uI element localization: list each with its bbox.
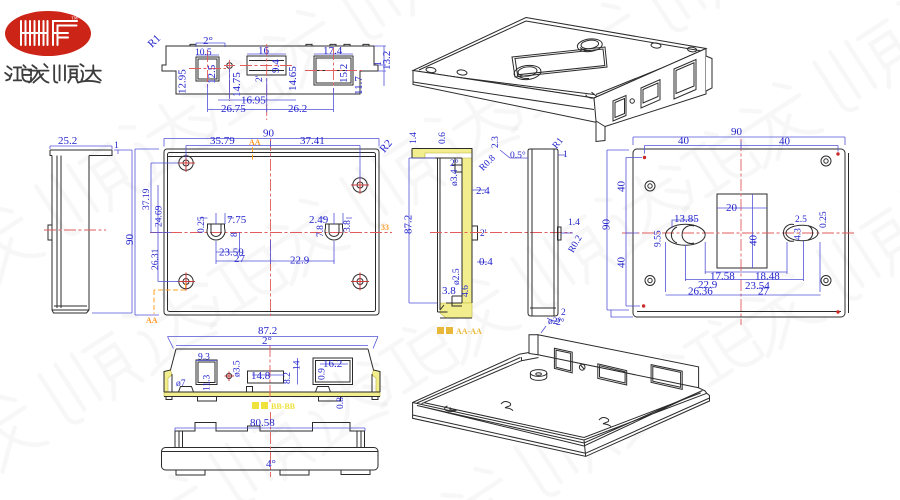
- svg-text:14.75: 14.75: [231, 72, 243, 97]
- svg-text:ø3.4: ø3.4: [450, 169, 460, 186]
- svg-text:40: 40: [616, 257, 628, 269]
- svg-text:0.25: 0.25: [819, 211, 829, 228]
- svg-text:2°: 2°: [203, 35, 213, 47]
- svg-text:40: 40: [616, 181, 628, 193]
- svg-text:11.7: 11.7: [353, 76, 365, 95]
- svg-text:ø3.5: ø3.5: [233, 360, 243, 377]
- svg-text:40: 40: [748, 235, 760, 247]
- svg-text:40: 40: [779, 136, 791, 148]
- svg-text:26.31: 26.31: [151, 248, 161, 270]
- svg-text:37.41: 37.41: [300, 135, 325, 147]
- svg-text:0.8: 0.8: [336, 397, 346, 409]
- svg-text:40: 40: [678, 135, 690, 147]
- svg-text:37.19: 37.19: [142, 188, 152, 210]
- svg-text:7.75: 7.75: [227, 214, 247, 226]
- svg-text:0.25: 0.25: [197, 216, 207, 233]
- svg-text:27: 27: [758, 286, 770, 298]
- svg-text:2.5: 2.5: [795, 215, 807, 225]
- svg-text:BB-BB: BB-BB: [271, 402, 296, 411]
- svg-text:0.6: 0.6: [438, 132, 448, 144]
- svg-text:16: 16: [258, 45, 270, 57]
- svg-text:11.3: 11.3: [203, 374, 213, 391]
- svg-text:7.8: 7.8: [316, 225, 326, 237]
- svg-text:9.4: 9.4: [270, 59, 282, 73]
- svg-text:2.4: 2.4: [476, 185, 490, 197]
- svg-text:2.49: 2.49: [309, 214, 329, 226]
- svg-text:90: 90: [601, 219, 613, 231]
- svg-text:4°: 4°: [266, 458, 276, 470]
- svg-text:1.4: 1.4: [409, 132, 419, 144]
- svg-text:3.8: 3.8: [343, 220, 353, 232]
- svg-text:10.5: 10.5: [195, 48, 212, 58]
- svg-text:27: 27: [234, 253, 246, 265]
- svg-text:2°: 2°: [262, 335, 272, 347]
- svg-text:0.9: 0.9: [318, 368, 328, 380]
- svg-text:87.2: 87.2: [403, 215, 415, 234]
- svg-text:14.8: 14.8: [251, 370, 271, 382]
- svg-text:4.6: 4.6: [461, 285, 471, 297]
- svg-text:15.2: 15.2: [338, 64, 350, 83]
- svg-text:14.65: 14.65: [287, 66, 299, 91]
- svg-text:9.55: 9.55: [654, 230, 664, 247]
- svg-text:35.79: 35.79: [210, 135, 235, 147]
- svg-text:2°: 2°: [450, 158, 459, 169]
- svg-text:13.2: 13.2: [381, 51, 393, 70]
- svg-text:0.5°: 0.5°: [510, 150, 526, 161]
- svg-text:AA: AA: [146, 316, 158, 325]
- svg-text:22.9: 22.9: [290, 255, 310, 267]
- svg-text:17.4: 17.4: [323, 45, 343, 57]
- svg-text:26.36: 26.36: [688, 286, 713, 298]
- svg-text:26.2: 26.2: [288, 103, 307, 115]
- svg-text:0.4: 0.4: [479, 256, 493, 268]
- svg-text:14: 14: [293, 360, 303, 370]
- svg-text:ø7: ø7: [176, 379, 186, 389]
- svg-text:2.3: 2.3: [491, 136, 501, 148]
- svg-text:ø2.5: ø2.5: [452, 268, 462, 285]
- svg-text:3.8: 3.8: [442, 285, 456, 297]
- svg-text:12.5: 12.5: [206, 64, 218, 84]
- svg-text:™: ™: [71, 15, 78, 23]
- svg-text:13.85: 13.85: [674, 213, 699, 225]
- svg-text:12.95: 12.95: [177, 69, 189, 94]
- svg-text:90: 90: [731, 126, 743, 138]
- svg-text:20: 20: [726, 202, 738, 214]
- svg-text:9.3: 9.3: [198, 353, 210, 363]
- svg-text:2': 2': [255, 75, 265, 82]
- svg-text:8: 8: [230, 232, 240, 237]
- svg-text:80.58: 80.58: [250, 417, 275, 429]
- svg-text:1: 1: [114, 141, 119, 151]
- svg-text:24.69: 24.69: [155, 205, 165, 227]
- svg-text:8.2: 8.2: [283, 372, 293, 384]
- svg-text:33: 33: [381, 223, 389, 232]
- svg-text:26.75: 26.75: [221, 103, 246, 115]
- svg-text:AA-AA: AA-AA: [456, 327, 482, 336]
- svg-text:90: 90: [124, 234, 136, 246]
- svg-text:4.3: 4.3: [794, 228, 804, 240]
- svg-text:25.2: 25.2: [58, 135, 77, 147]
- svg-text:1.4: 1.4: [568, 218, 580, 228]
- svg-text:90: 90: [263, 128, 275, 140]
- svg-text:2': 2': [480, 229, 487, 239]
- svg-text:ø2°: ø2°: [548, 316, 562, 327]
- svg-text:2: 2: [561, 308, 566, 318]
